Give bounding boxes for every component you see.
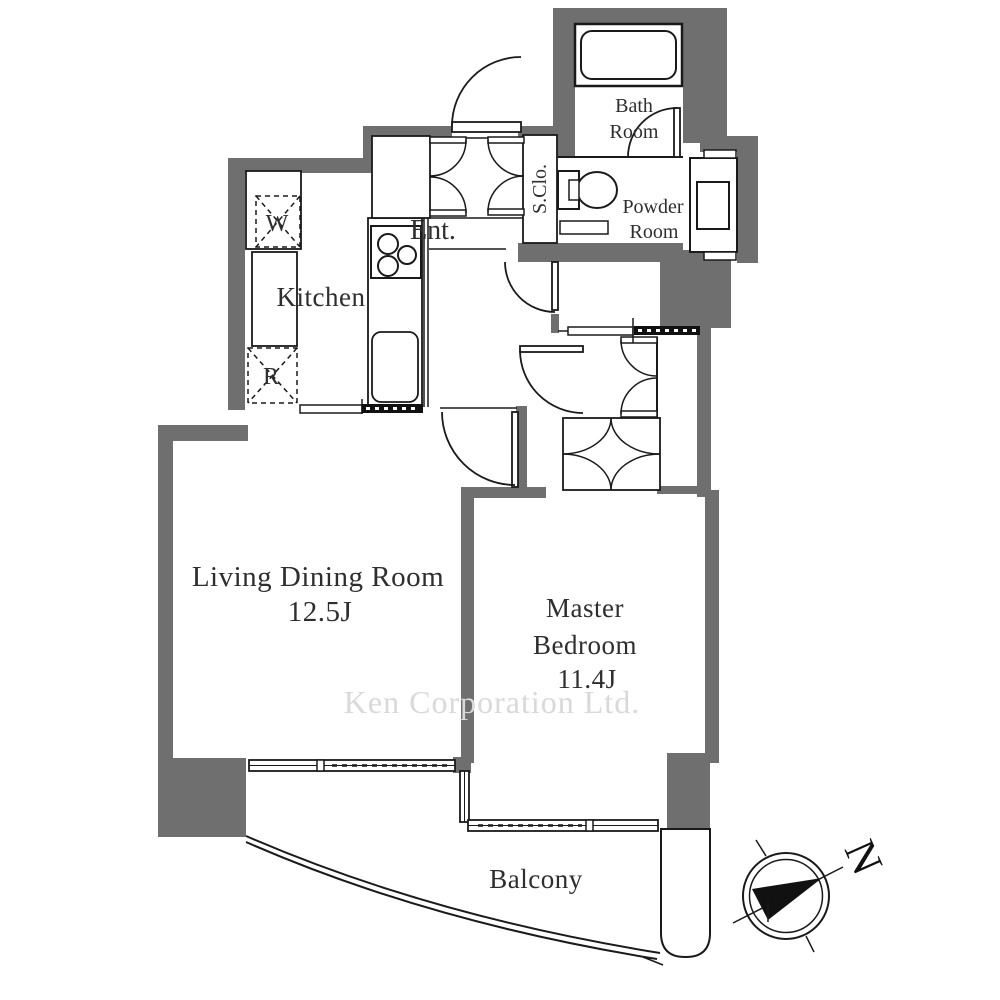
kitchen-sliding-panel [300, 405, 362, 413]
ldr-door-leaf [512, 412, 518, 487]
wall-bedroom-top-right [657, 486, 702, 494]
ent-closet-leaf-top [430, 137, 466, 143]
wall-powder-bottom [518, 243, 683, 262]
entrance-door-leaf [452, 122, 521, 132]
bedroom-window-mullion [586, 820, 593, 831]
master-bedroom-label-2: Bedroom [533, 630, 637, 660]
strip-sliding-panel [568, 327, 633, 335]
strip-closet-leaf-top [621, 337, 657, 343]
living-dining-size: 12.5J [288, 596, 353, 628]
windows [249, 760, 658, 831]
bath-room-label-1: Bath [615, 95, 653, 117]
wall-bath-right [683, 8, 727, 143]
toilet-bowl-icon [577, 172, 617, 208]
wall-bottom-left-block [158, 758, 246, 837]
shoe-closet-leaf-bottom [488, 209, 524, 215]
washer-pan-inner [697, 182, 729, 229]
master-bedroom-label-1: Master [546, 593, 624, 623]
wall-ldr-bedroom-divider [461, 487, 474, 763]
wall-bedroom-right [705, 490, 719, 763]
wall-kitchen-left [228, 158, 245, 410]
north-label: N [835, 833, 893, 882]
shoe-closet-label: S.Clo. [529, 164, 551, 214]
balcony-rail-outer [246, 836, 660, 953]
toilet-tank-detail [569, 180, 579, 200]
bath-door-leaf [674, 108, 680, 157]
bathtub-icon [581, 31, 676, 79]
ldr-window-mullion [317, 760, 324, 771]
washer-pan-tab-top [704, 150, 736, 158]
compass: N [733, 833, 892, 952]
powder-room-label-1: Powder [622, 196, 683, 218]
balcony-end-cap [661, 829, 710, 957]
compass-needle-icon [752, 878, 822, 920]
vanity-counter [560, 221, 608, 234]
kitchen-label: Kitchen [277, 282, 366, 312]
shoe-closet-arc-top [488, 140, 524, 176]
compass-tick-nw [756, 840, 766, 856]
bedroom-door-arc [520, 350, 583, 413]
compass-tick-se [806, 936, 814, 952]
floor-plan-drawing: N Bath Room Powder Room S.Clo. Ent. Kitc… [0, 0, 1000, 1000]
labels: Bath Room Powder Room S.Clo. Ent. Kitche… [192, 95, 684, 894]
living-dining-label: Living Dining Room [192, 561, 444, 593]
shoe-closet-leaf-top [488, 137, 524, 143]
entrance-closet [372, 136, 430, 218]
shoe-closet-arc-bottom [488, 176, 524, 212]
wall-powder-right [737, 148, 758, 263]
balcony-label: Balcony [489, 864, 582, 894]
wall-hall-tick [551, 314, 559, 333]
floor-plan-page: N Bath Room Powder Room S.Clo. Ent. Kitc… [0, 0, 1000, 1000]
watermark-text: Ken Corporation Ltd. [344, 684, 640, 720]
washer-pan-tab-bottom [704, 252, 736, 260]
ent-closet-arc-top [430, 140, 466, 176]
sliding-doors [300, 318, 700, 414]
entrance-door-arc [452, 57, 521, 126]
bath-room-label-2: Room [610, 121, 659, 143]
bedroom-closet [563, 418, 660, 490]
bedroom-door-leaf [520, 346, 583, 352]
ent-closet-arc-bottom [430, 177, 466, 213]
powder-room-label-2: Room [630, 221, 679, 243]
ldr-door-arc [442, 412, 515, 485]
washer-label: W [266, 211, 289, 237]
washer-space-cabinet [246, 171, 301, 249]
powder-door-leaf [552, 262, 558, 310]
powder-door-arc [505, 262, 555, 312]
strip-closet-leaf-bottom [621, 411, 657, 417]
wall-closet-strip-right [697, 328, 711, 497]
balcony [246, 829, 710, 965]
wall-bedroom-corner-block [667, 753, 710, 829]
strip-closet-arc-top [621, 340, 657, 376]
strip-closet-arc-bottom [621, 378, 657, 414]
entrance-label: Ent. [410, 215, 456, 246]
sink-icon [372, 332, 418, 402]
refrigerator-label: R [263, 364, 279, 390]
